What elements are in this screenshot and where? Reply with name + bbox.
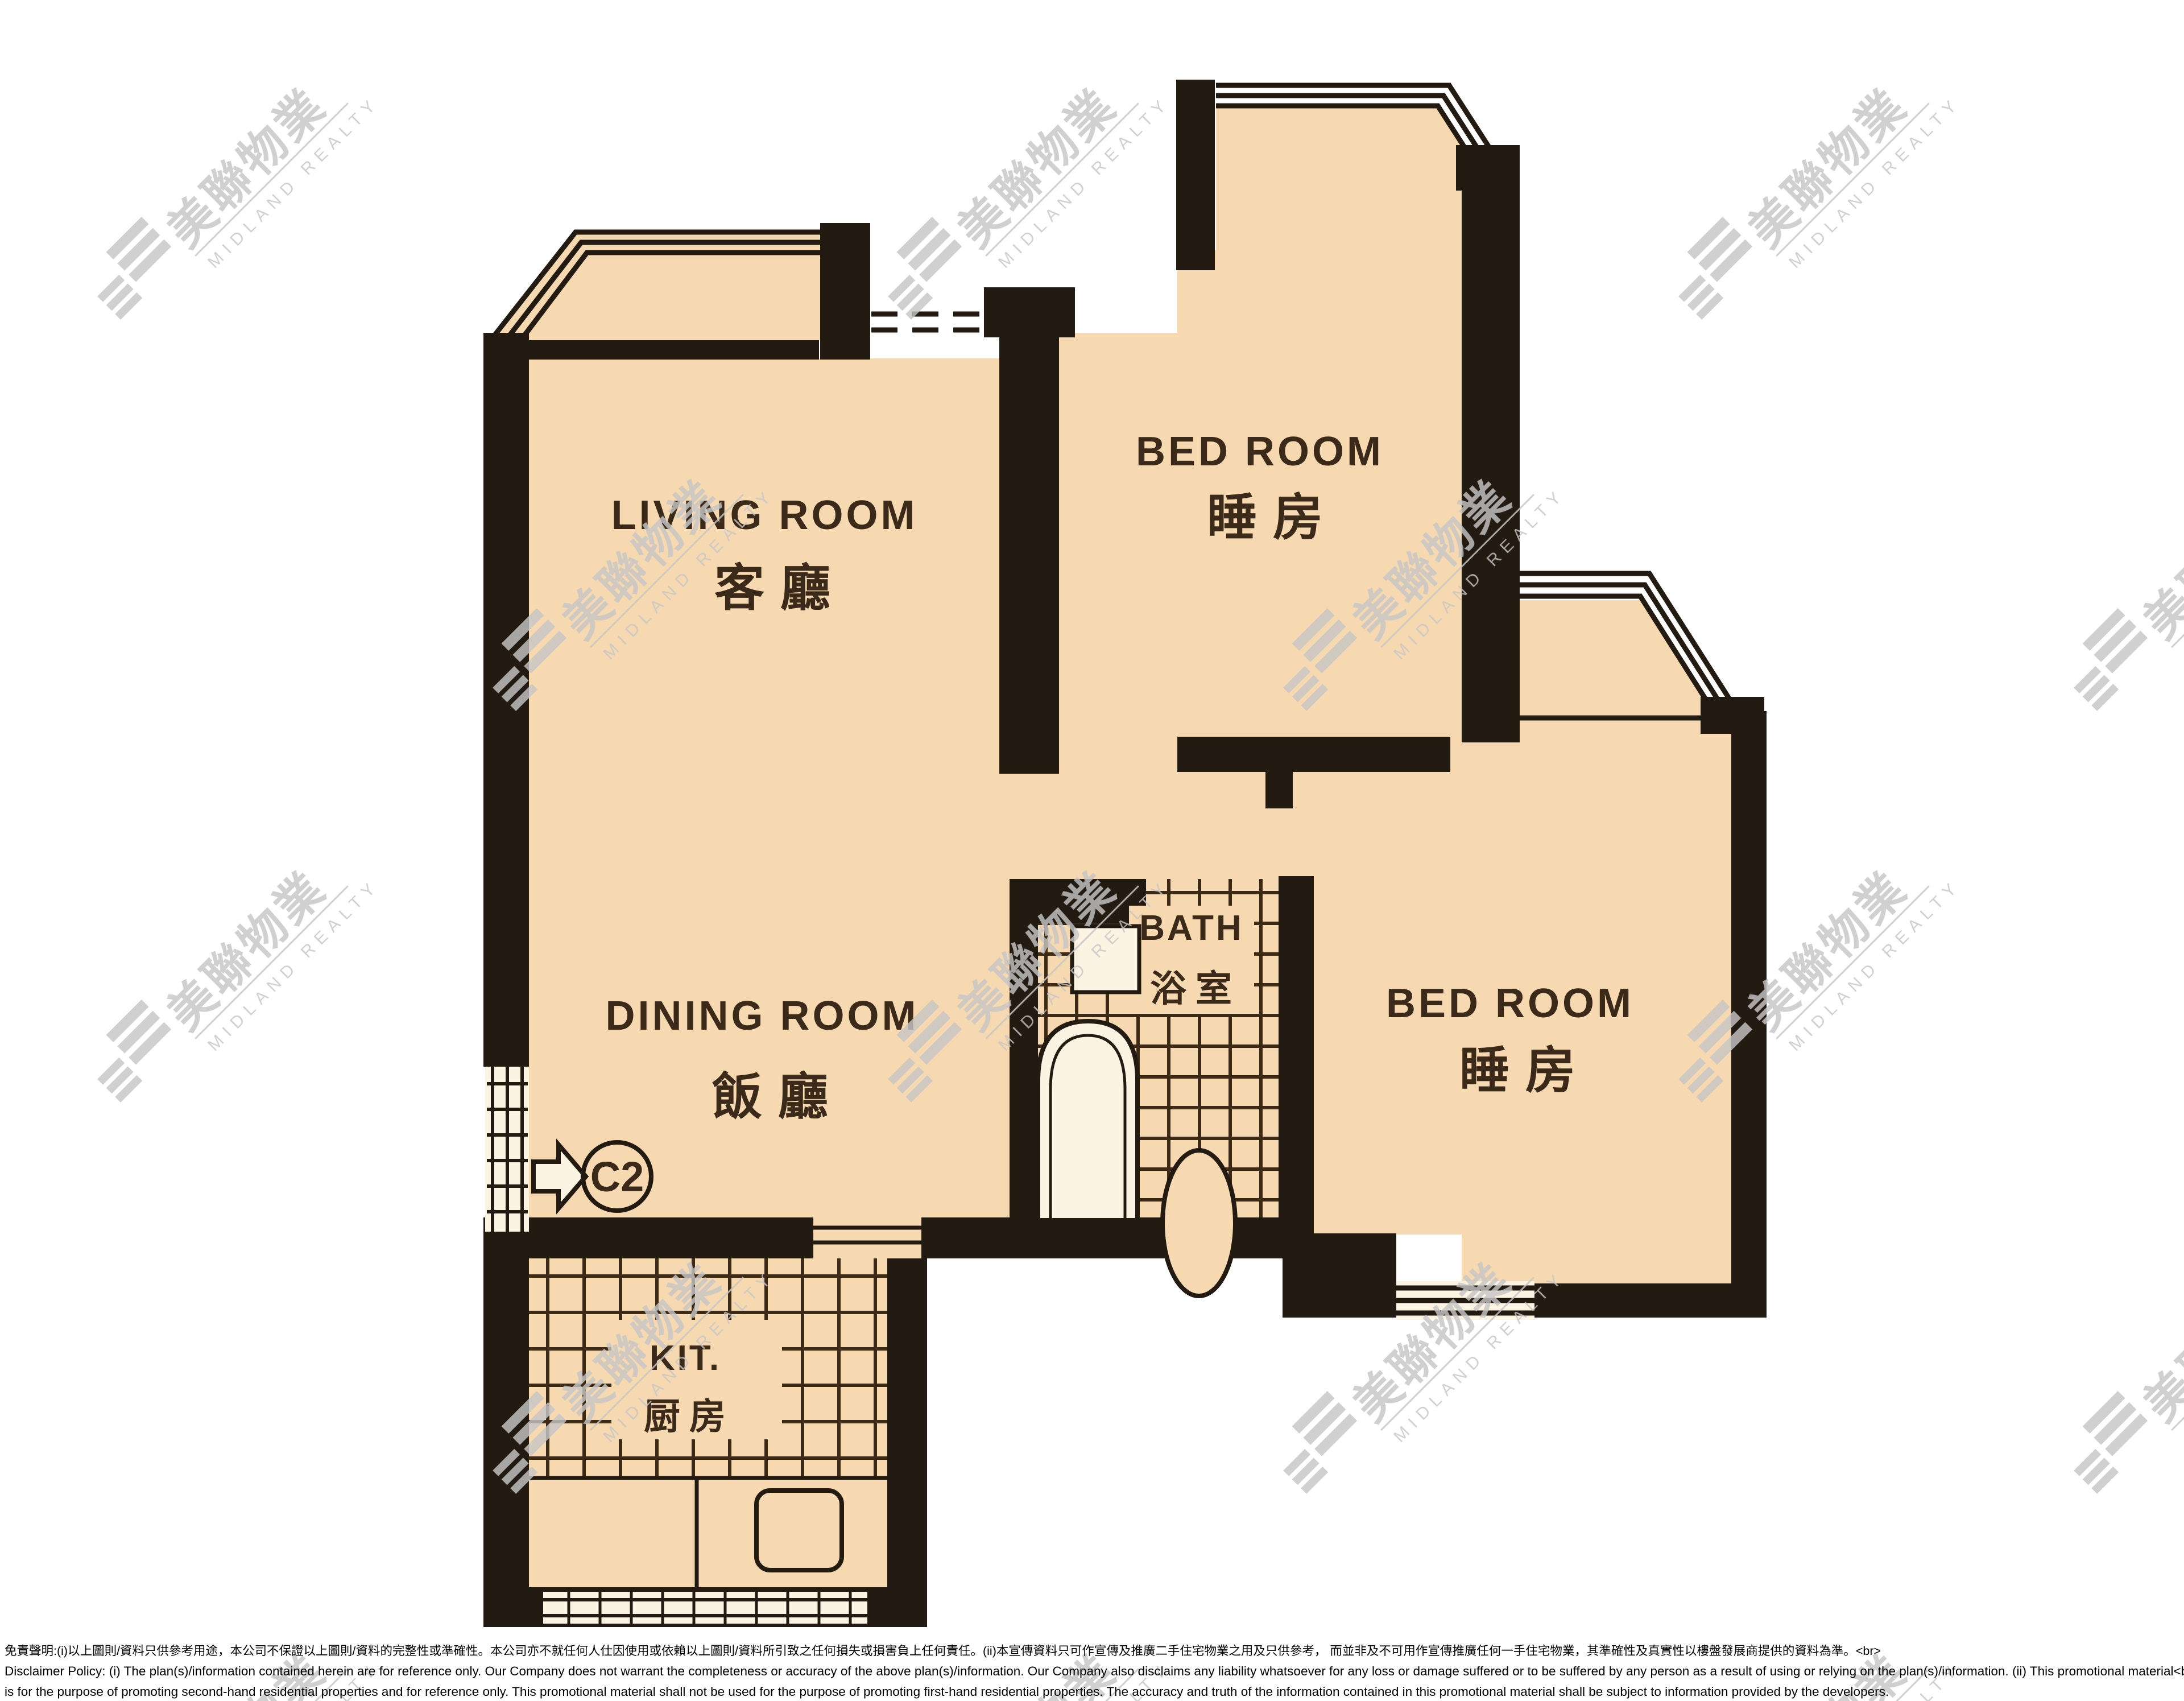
living-room-label-zh: 客廳 xyxy=(714,560,846,616)
unit-label: C2 xyxy=(590,1153,644,1200)
kitchen-bottom-window xyxy=(543,1592,867,1624)
floor-plan: 美聯物業 MIDLAND REALTY xyxy=(0,0,2184,1701)
bath-label-en: BATH xyxy=(1139,909,1244,948)
kitchen-label-zh: 厨房 xyxy=(644,1396,735,1437)
dining-room-label-en: DINING ROOM xyxy=(606,993,919,1039)
disclaimer-line-zh: 免責聲明:(i)以上圖則/資料只供參考用途，本公司不保證以上圖則/資料的完整性或… xyxy=(5,1641,2182,1661)
bedroom-top-label-en: BED ROOM xyxy=(1136,429,1384,474)
bedroom-right-label-en: BED ROOM xyxy=(1386,981,1634,1026)
bedroom-right-label-zh: 睡房 xyxy=(1459,1042,1591,1099)
floor-plan-page: 美聯物業 MIDLAND REALTY xyxy=(0,0,2184,1701)
entrance-door-band xyxy=(485,1067,529,1232)
kitchen-sink xyxy=(756,1491,842,1570)
bathtub xyxy=(1038,1021,1137,1220)
disclaimer-line-en1: Disclaimer Policy: (i) The plan(s)/infor… xyxy=(5,1661,2182,1682)
living-top-window xyxy=(871,314,999,330)
bath-label-zh: 浴室 xyxy=(1150,968,1241,1009)
dining-room-label-zh: 飯廳 xyxy=(712,1068,844,1125)
disclaimer-line-en2: is for the purpose of promoting second-h… xyxy=(5,1682,2182,1701)
toilet xyxy=(1163,1150,1235,1296)
bedroom-right-bay-floor xyxy=(1520,600,1715,716)
disclaimer-footer: 免責聲明:(i)以上圖則/資料只供參考用途，本公司不保證以上圖則/資料的完整性或… xyxy=(5,1641,2182,1701)
bedroom-top-label-zh: 睡房 xyxy=(1207,489,1339,546)
